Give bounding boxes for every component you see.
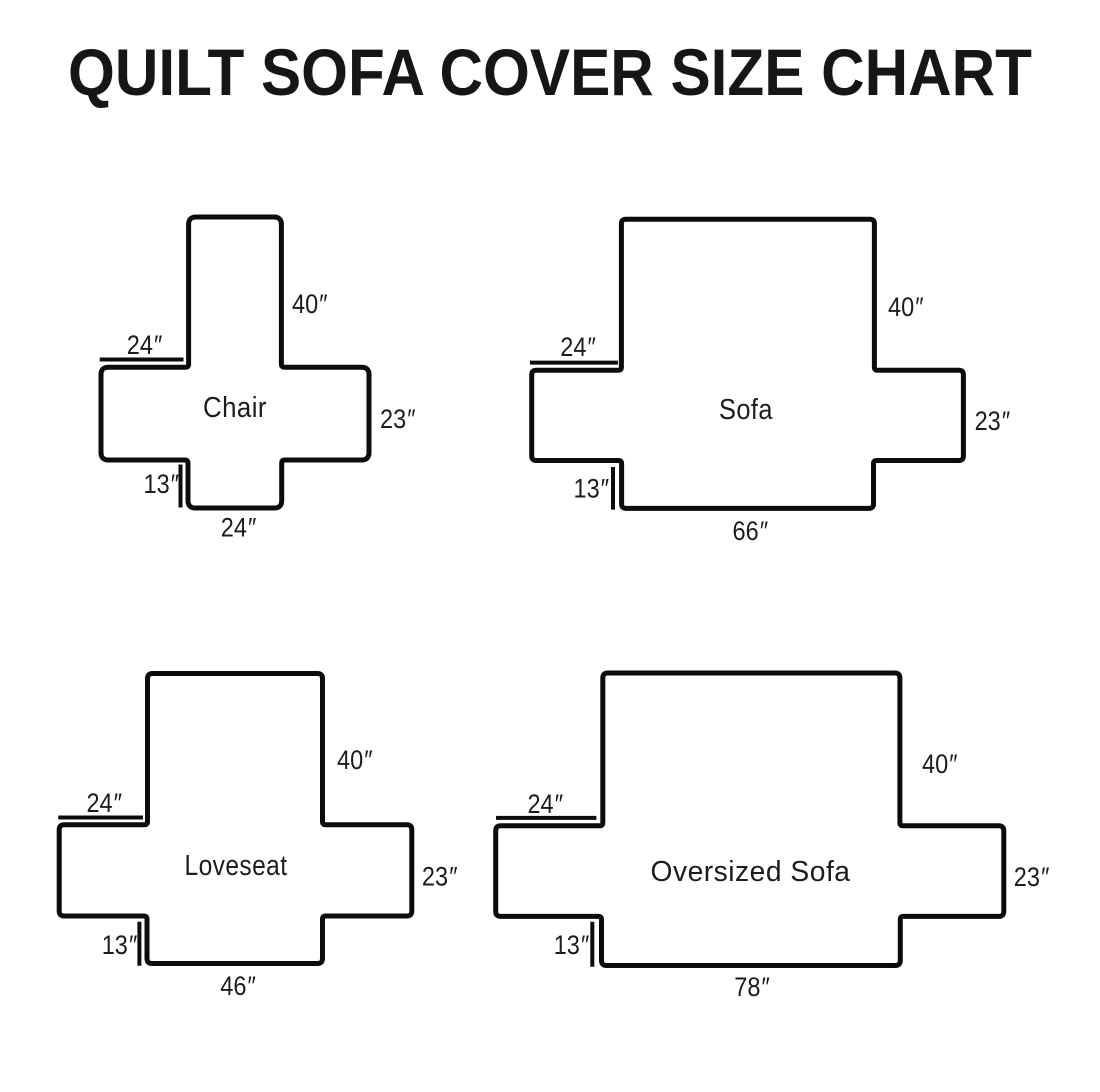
svg-text:23″: 23″ <box>380 404 416 434</box>
svg-text:40″: 40″ <box>922 749 958 779</box>
svg-text:24″: 24″ <box>127 330 163 360</box>
svg-text:24″: 24″ <box>527 789 563 819</box>
svg-text:13″: 13″ <box>574 474 610 504</box>
svg-text:24″: 24″ <box>560 332 596 362</box>
svg-text:78″: 78″ <box>734 972 770 1002</box>
svg-text:24″: 24″ <box>86 788 122 818</box>
svg-text:13″: 13″ <box>102 930 138 960</box>
svg-text:Chair: Chair <box>203 392 267 424</box>
svg-text:Loveseat: Loveseat <box>185 850 288 882</box>
svg-text:23″: 23″ <box>422 862 458 892</box>
svg-text:Sofa: Sofa <box>719 394 773 426</box>
svg-text:40″: 40″ <box>888 292 924 322</box>
svg-text:QUILT SOFA COVER SIZE CHART: QUILT SOFA COVER SIZE CHART <box>68 35 1032 109</box>
svg-text:13″: 13″ <box>554 930 590 960</box>
svg-text:66″: 66″ <box>733 516 769 546</box>
svg-text:23″: 23″ <box>1014 862 1050 892</box>
svg-text:46″: 46″ <box>220 971 256 1001</box>
svg-text:23″: 23″ <box>975 406 1011 436</box>
svg-text:Oversized Sofa: Oversized Sofa <box>651 856 851 888</box>
svg-text:24″: 24″ <box>221 513 257 543</box>
svg-text:13″: 13″ <box>144 469 180 499</box>
svg-text:40″: 40″ <box>337 745 373 775</box>
svg-text:40″: 40″ <box>292 289 328 319</box>
